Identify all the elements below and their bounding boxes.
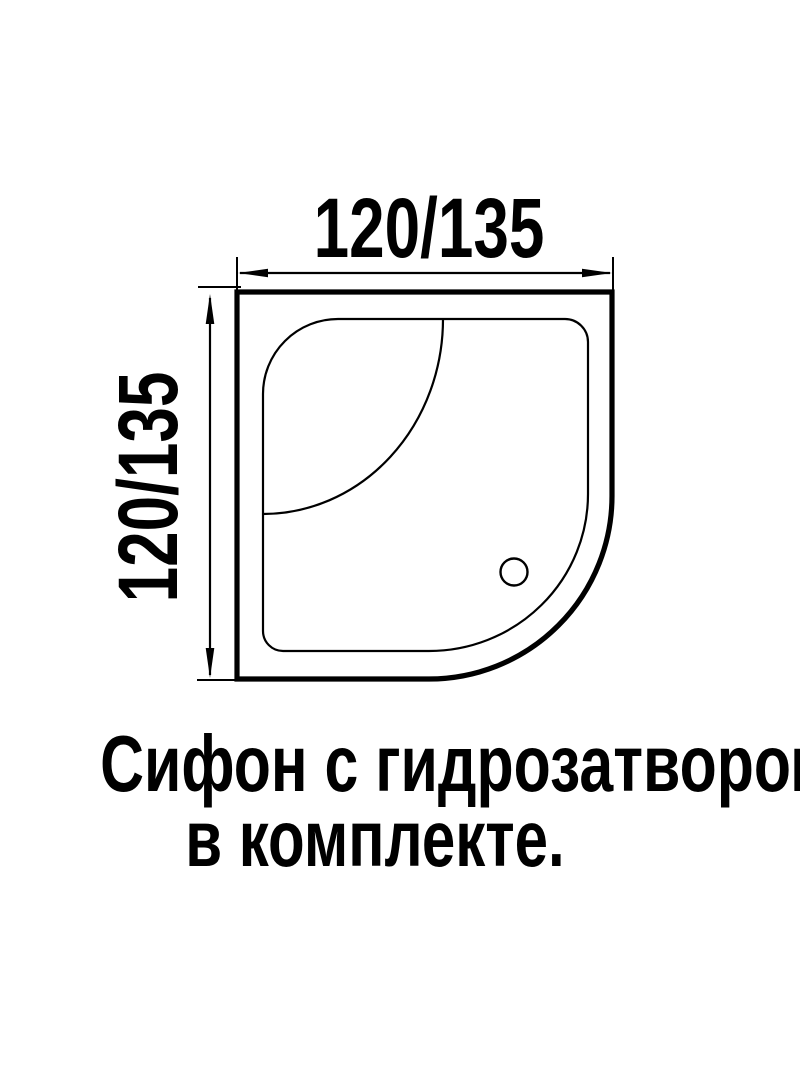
width-dimension-label: 120/135 [314, 186, 545, 270]
height-dimension-label: 120/135 [106, 372, 190, 603]
shower-tray-diagram: 120/135 120/135 Сифон с гидрозатвором в … [0, 0, 800, 1066]
arrow-down-icon [206, 648, 215, 678]
drain-hole [501, 559, 528, 586]
caption-line-1: Сифон с гидрозатвором [0, 724, 800, 804]
arrow-right-icon [582, 269, 612, 278]
tray-seat-curve [263, 319, 443, 514]
tray-inner-outline [263, 319, 588, 651]
caption-text-1: Сифон с гидрозатвором [100, 724, 800, 804]
tray-outer-outline [237, 292, 612, 679]
caption-text-2: в комплекте. [185, 799, 564, 879]
arrow-up-icon [206, 294, 215, 324]
caption-line-2: в комплекте. [0, 799, 800, 879]
arrow-left-icon [238, 269, 268, 278]
